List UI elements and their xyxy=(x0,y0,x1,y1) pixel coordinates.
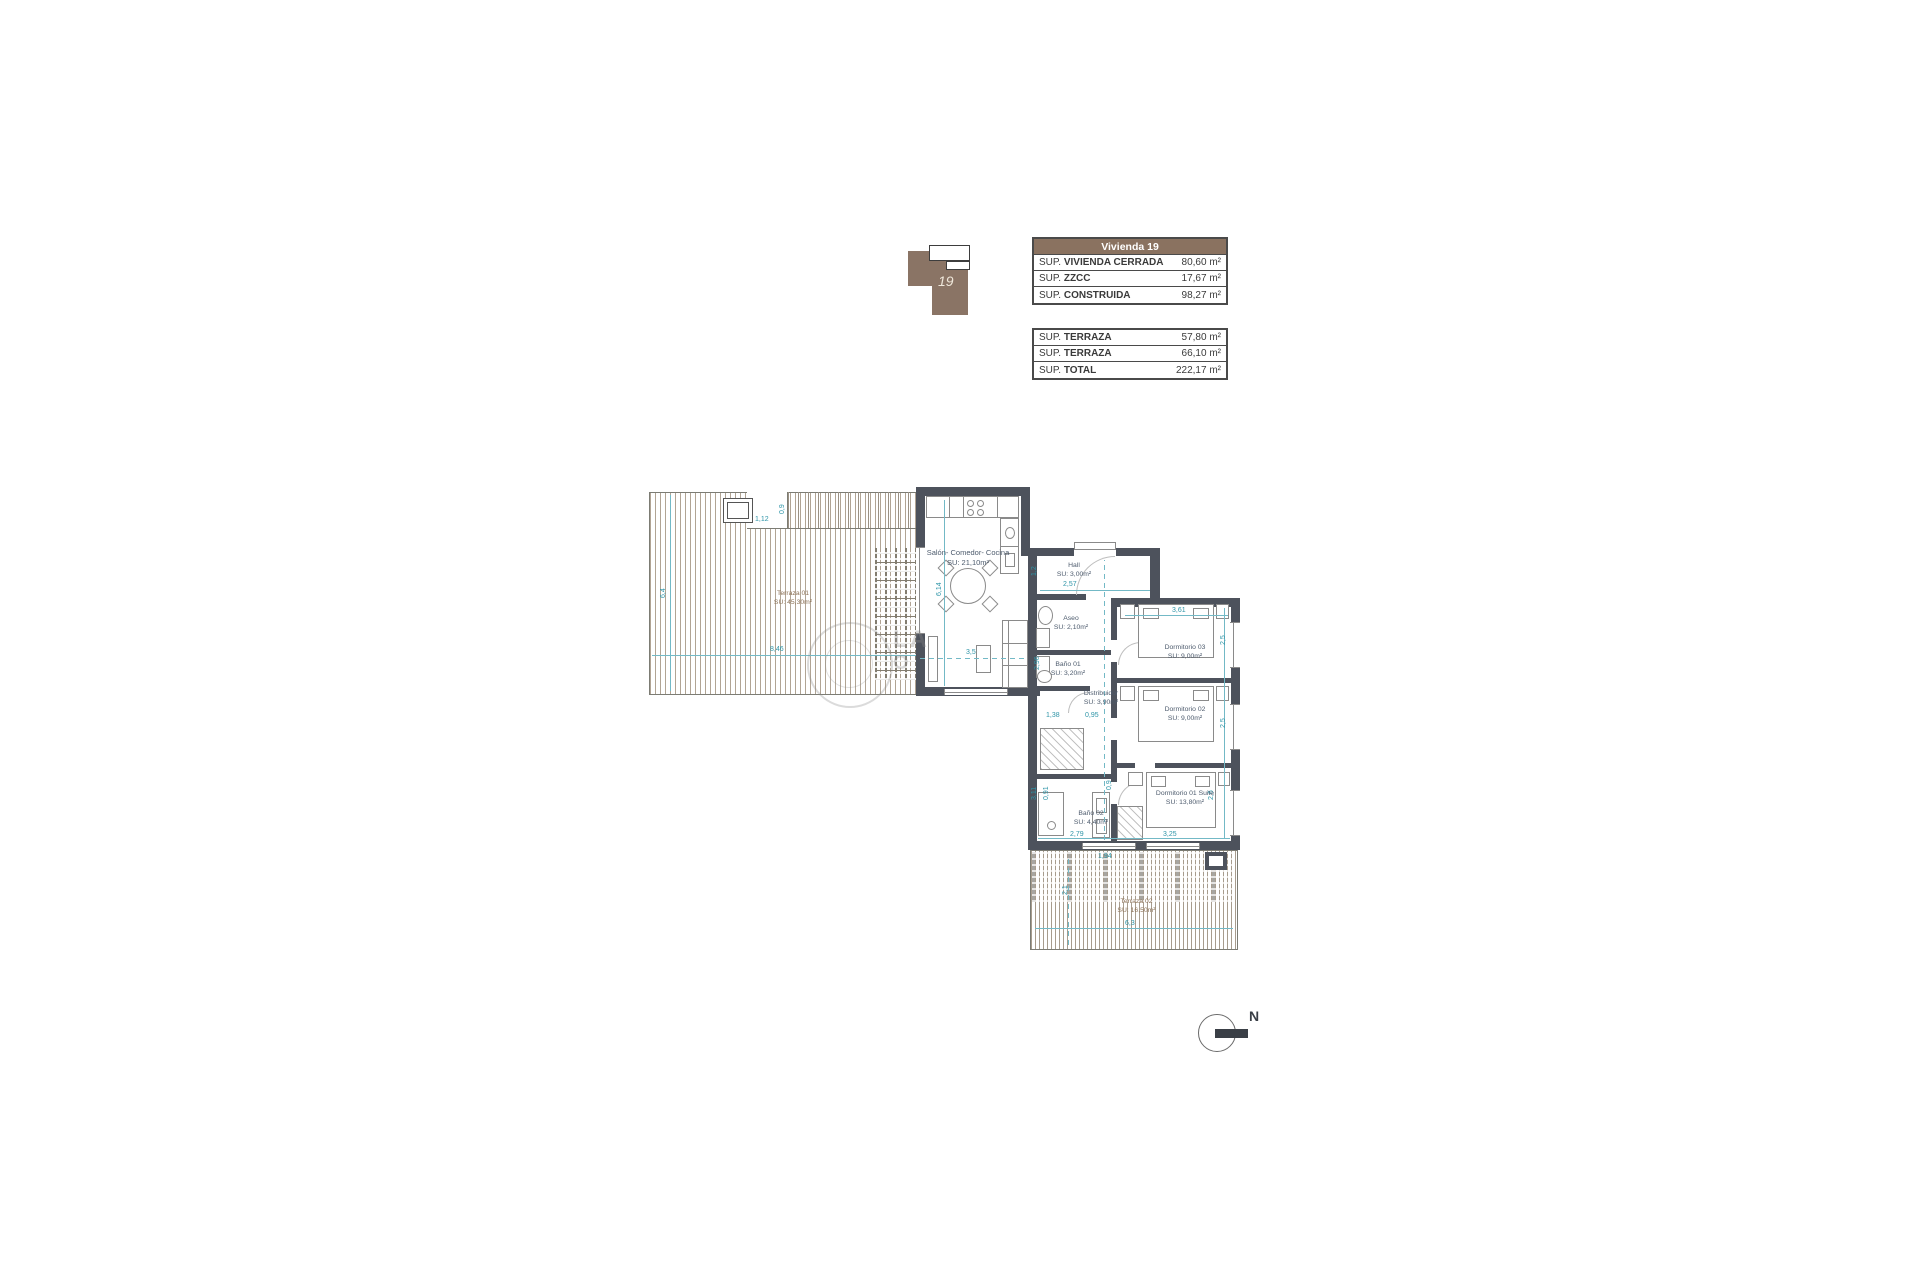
dimension-label: 0,91 xyxy=(1043,786,1050,800)
room-label-dorm2: Dormitorio 02 SU: 9,00m² xyxy=(1145,706,1225,724)
row-prefix: SUP. xyxy=(1039,273,1064,284)
sofa-cushion-line xyxy=(1003,665,1027,666)
room-name: Dormitorio 03 xyxy=(1145,644,1225,653)
dimension-label: 6,4 xyxy=(660,588,667,598)
dimension-label: 1,94 xyxy=(1098,853,1112,860)
room-name: Distribuidor xyxy=(1070,690,1132,699)
entrance-door-leaf xyxy=(1074,542,1116,550)
surface-table-main: Vivienda 19 SUP. VIVIENDA CERRADA 80,60 … xyxy=(1032,237,1228,305)
dim-line xyxy=(920,658,1024,659)
wall-segment xyxy=(1028,556,1037,850)
pillow xyxy=(1143,608,1159,619)
coffee-table xyxy=(976,645,991,673)
table-row: SUP. TERRAZA 66,10 m² xyxy=(1034,346,1226,362)
wall-segment xyxy=(1155,763,1231,768)
room-label-bano2: Baño 02 SU: 4,40m² xyxy=(1066,810,1116,828)
dim-line xyxy=(1068,855,1069,945)
row-value: 66,10 m² xyxy=(1182,348,1221,359)
row-name: VIVIENDA CERRADA xyxy=(1064,257,1164,268)
shower-drain xyxy=(1047,821,1056,830)
dimension-label: 8,46 xyxy=(770,646,784,653)
skylight-inner-frame xyxy=(727,502,749,519)
wall-segment xyxy=(1028,650,1111,655)
room-name: Baño 02 xyxy=(1066,810,1116,819)
row-value: 80,60 m² xyxy=(1182,257,1221,268)
row-name: CONSTRUIDA xyxy=(1064,290,1131,301)
room-area: SU: 2,10m² xyxy=(1046,624,1096,633)
row-name: ZZCC xyxy=(1064,273,1091,284)
corridor-closet xyxy=(1040,728,1084,770)
dimension-label: 3,11 xyxy=(1031,787,1038,800)
room-area: SU: 21,10m² xyxy=(922,558,1014,568)
wall-segment xyxy=(1117,763,1135,768)
sofa-back-line xyxy=(1008,621,1009,687)
window-dorm2 xyxy=(1230,704,1240,750)
room-name: Aseo xyxy=(1046,615,1096,624)
wall-segment xyxy=(1111,607,1117,640)
dimension-label: 6,3 xyxy=(1125,920,1135,927)
table-row: SUP. TOTAL 222,17 m² xyxy=(1034,362,1226,378)
wall-segment xyxy=(916,487,925,549)
suite-closet xyxy=(1117,806,1143,840)
nightstand xyxy=(1128,772,1143,786)
window-suite xyxy=(1230,790,1240,836)
terrace-01-pergola-strip xyxy=(787,492,918,529)
dimension-label: 3,25 xyxy=(1163,831,1177,838)
watermark-inner-circle xyxy=(825,640,873,688)
terrace-02-pillar xyxy=(1205,852,1227,870)
row-value: 17,67 m² xyxy=(1182,273,1221,284)
room-area: SU: 4,40m² xyxy=(1066,819,1116,828)
dimension-label: 6,14 xyxy=(936,582,943,596)
dimension-label: 0,95 xyxy=(1085,712,1099,719)
row-prefix: SUP. xyxy=(1039,332,1064,343)
room-area: SU: 16,50m² xyxy=(1104,907,1169,916)
hob-burner xyxy=(967,509,974,516)
window-dorm3 xyxy=(1230,622,1240,668)
dimension-label: 3,61 xyxy=(1172,607,1186,614)
watermark-text: LA xyxy=(893,626,929,654)
dim-line xyxy=(1038,838,1230,839)
pillow xyxy=(1193,690,1209,701)
room-name: Salón- Comedor- Cocina xyxy=(922,548,1014,558)
row-prefix: SUP. xyxy=(1039,257,1064,268)
wall-segment xyxy=(1117,678,1231,683)
row-prefix: SUP. xyxy=(1039,365,1064,376)
dining-table xyxy=(950,568,986,604)
room-label-hall: Hall SU: 3,00m² xyxy=(1040,562,1108,580)
sink-icon xyxy=(1005,527,1015,539)
room-name: Terraza 01 xyxy=(758,590,828,599)
row-name: TERRAZA xyxy=(1064,332,1112,343)
counter-divider xyxy=(997,497,998,517)
room-label-suite: Dormitorio 01 Suite SU: 13,80m² xyxy=(1140,790,1230,808)
room-label-distribuidor: Distribuidor SU: 3,90m² xyxy=(1070,690,1132,708)
nightstand xyxy=(1216,686,1229,701)
dimension-label: 3,5 xyxy=(966,649,976,656)
counter-divider xyxy=(963,497,964,517)
row-prefix: SUP. xyxy=(1039,290,1064,301)
pillow xyxy=(1143,690,1159,701)
dimension-label: 1,12 xyxy=(755,516,769,523)
room-label-terraza2: Terraza 02 SU: 16,50m² xyxy=(1104,898,1169,916)
row-prefix: SUP. xyxy=(1039,348,1064,359)
pillow xyxy=(1193,608,1209,619)
room-name: Hall xyxy=(1040,562,1108,571)
tv-unit xyxy=(928,636,938,682)
room-area: SU: 9,00m² xyxy=(1145,653,1225,662)
kitchen-counter xyxy=(926,496,1019,518)
watermark-text: O xyxy=(893,652,911,675)
sofa-cushion-line xyxy=(1003,643,1027,644)
pillow xyxy=(1195,776,1210,787)
dimension-label: 2,79 xyxy=(1070,831,1084,838)
room-label-aseo: Aseo SU: 2,10m² xyxy=(1046,615,1096,633)
table-row: SUP. CONSTRUIDA 98,27 m² xyxy=(1034,287,1226,303)
wall-segment xyxy=(1021,487,1030,556)
dim-line xyxy=(1035,928,1233,929)
dining-chair xyxy=(938,596,955,613)
floorplan-page: 19 Vivienda 19 SUP. VIVIENDA CERRADA 80,… xyxy=(0,0,1920,1280)
bano2-shower xyxy=(1038,792,1064,836)
room-label-terraza1: Terraza 01 SU: 45,30m² xyxy=(758,590,828,608)
row-name: TERRAZA xyxy=(1064,348,1112,359)
counter-divider xyxy=(949,497,950,517)
dimension-label: 2,57 xyxy=(1063,581,1077,588)
window-living-south xyxy=(944,689,1008,695)
hob-burner xyxy=(967,500,974,507)
room-name: Terraza 02 xyxy=(1104,898,1169,907)
row-value: 98,27 m² xyxy=(1182,290,1221,301)
dim-line xyxy=(1040,590,1150,591)
room-area: SU: 3,20m² xyxy=(1040,670,1096,679)
unit-shape-leg xyxy=(932,286,968,315)
window-terrace2-left xyxy=(1082,843,1136,849)
row-value: 222,17 m² xyxy=(1176,365,1221,376)
terrace-01-skylight xyxy=(723,498,753,523)
table-row: SUP. VIVIENDA CERRADA 80,60 m² xyxy=(1034,255,1226,271)
nightstand xyxy=(1120,604,1135,619)
dimension-label: 1,38 xyxy=(1046,712,1060,719)
room-name: Dormitorio 02 xyxy=(1145,706,1225,715)
dimension-label: 0,9 xyxy=(1106,780,1113,790)
dimension-label: 0,9 xyxy=(779,504,786,514)
sofa xyxy=(1002,620,1028,688)
dim-line xyxy=(1125,615,1228,616)
nightstand xyxy=(1216,604,1229,619)
window-terrace2-right xyxy=(1146,843,1200,849)
dimension-label: 2,1 xyxy=(1062,885,1069,895)
room-name: Baño 01 xyxy=(1040,661,1096,670)
north-label: N xyxy=(1249,1008,1259,1024)
dim-line xyxy=(670,495,671,691)
room-name: Dormitorio 01 Suite xyxy=(1140,790,1230,799)
north-compass-bar xyxy=(1215,1029,1248,1038)
room-area: SU: 45,30m² xyxy=(758,599,828,608)
wall-segment xyxy=(1028,774,1111,779)
dining-chair xyxy=(982,596,999,613)
table-row: SUP. TERRAZA 57,80 m² xyxy=(1034,330,1226,346)
room-area: SU: 13,80m² xyxy=(1140,799,1230,808)
wall-segment xyxy=(1116,548,1160,556)
dimension-label: 1,2 xyxy=(1031,566,1038,576)
room-label-salon: Salón- Comedor- Cocina SU: 21,10m² xyxy=(922,548,1014,568)
room-area: SU: 3,90m² xyxy=(1070,699,1132,708)
table-row: SUP. ZZCC 17,67 m² xyxy=(1034,271,1226,287)
table-header: Vivienda 19 xyxy=(1034,239,1226,255)
row-name: TOTAL xyxy=(1064,365,1096,376)
room-label-bano1: Baño 01 SU: 3,20m² xyxy=(1040,661,1096,679)
pillow xyxy=(1151,776,1166,787)
room-area: SU: 9,00m² xyxy=(1145,715,1225,724)
room-area: SU: 3,00m² xyxy=(1040,571,1108,580)
row-value: 57,80 m² xyxy=(1182,332,1221,343)
room-label-dorm3: Dormitorio 03 SU: 9,00m² xyxy=(1145,644,1225,662)
surface-table-terraces: SUP. TERRAZA 57,80 m² SUP. TERRAZA 66,10… xyxy=(1032,328,1228,380)
hob-burner xyxy=(977,500,984,507)
unit-divider xyxy=(1001,546,1018,547)
hob-burner xyxy=(977,509,984,516)
unit-number: 19 xyxy=(938,273,954,289)
unit-highlight-box-small xyxy=(946,261,970,270)
wall-segment xyxy=(1111,740,1117,782)
unit-highlight-box-large xyxy=(929,245,970,261)
wall-segment xyxy=(1028,548,1074,556)
wall-segment xyxy=(916,487,1030,496)
